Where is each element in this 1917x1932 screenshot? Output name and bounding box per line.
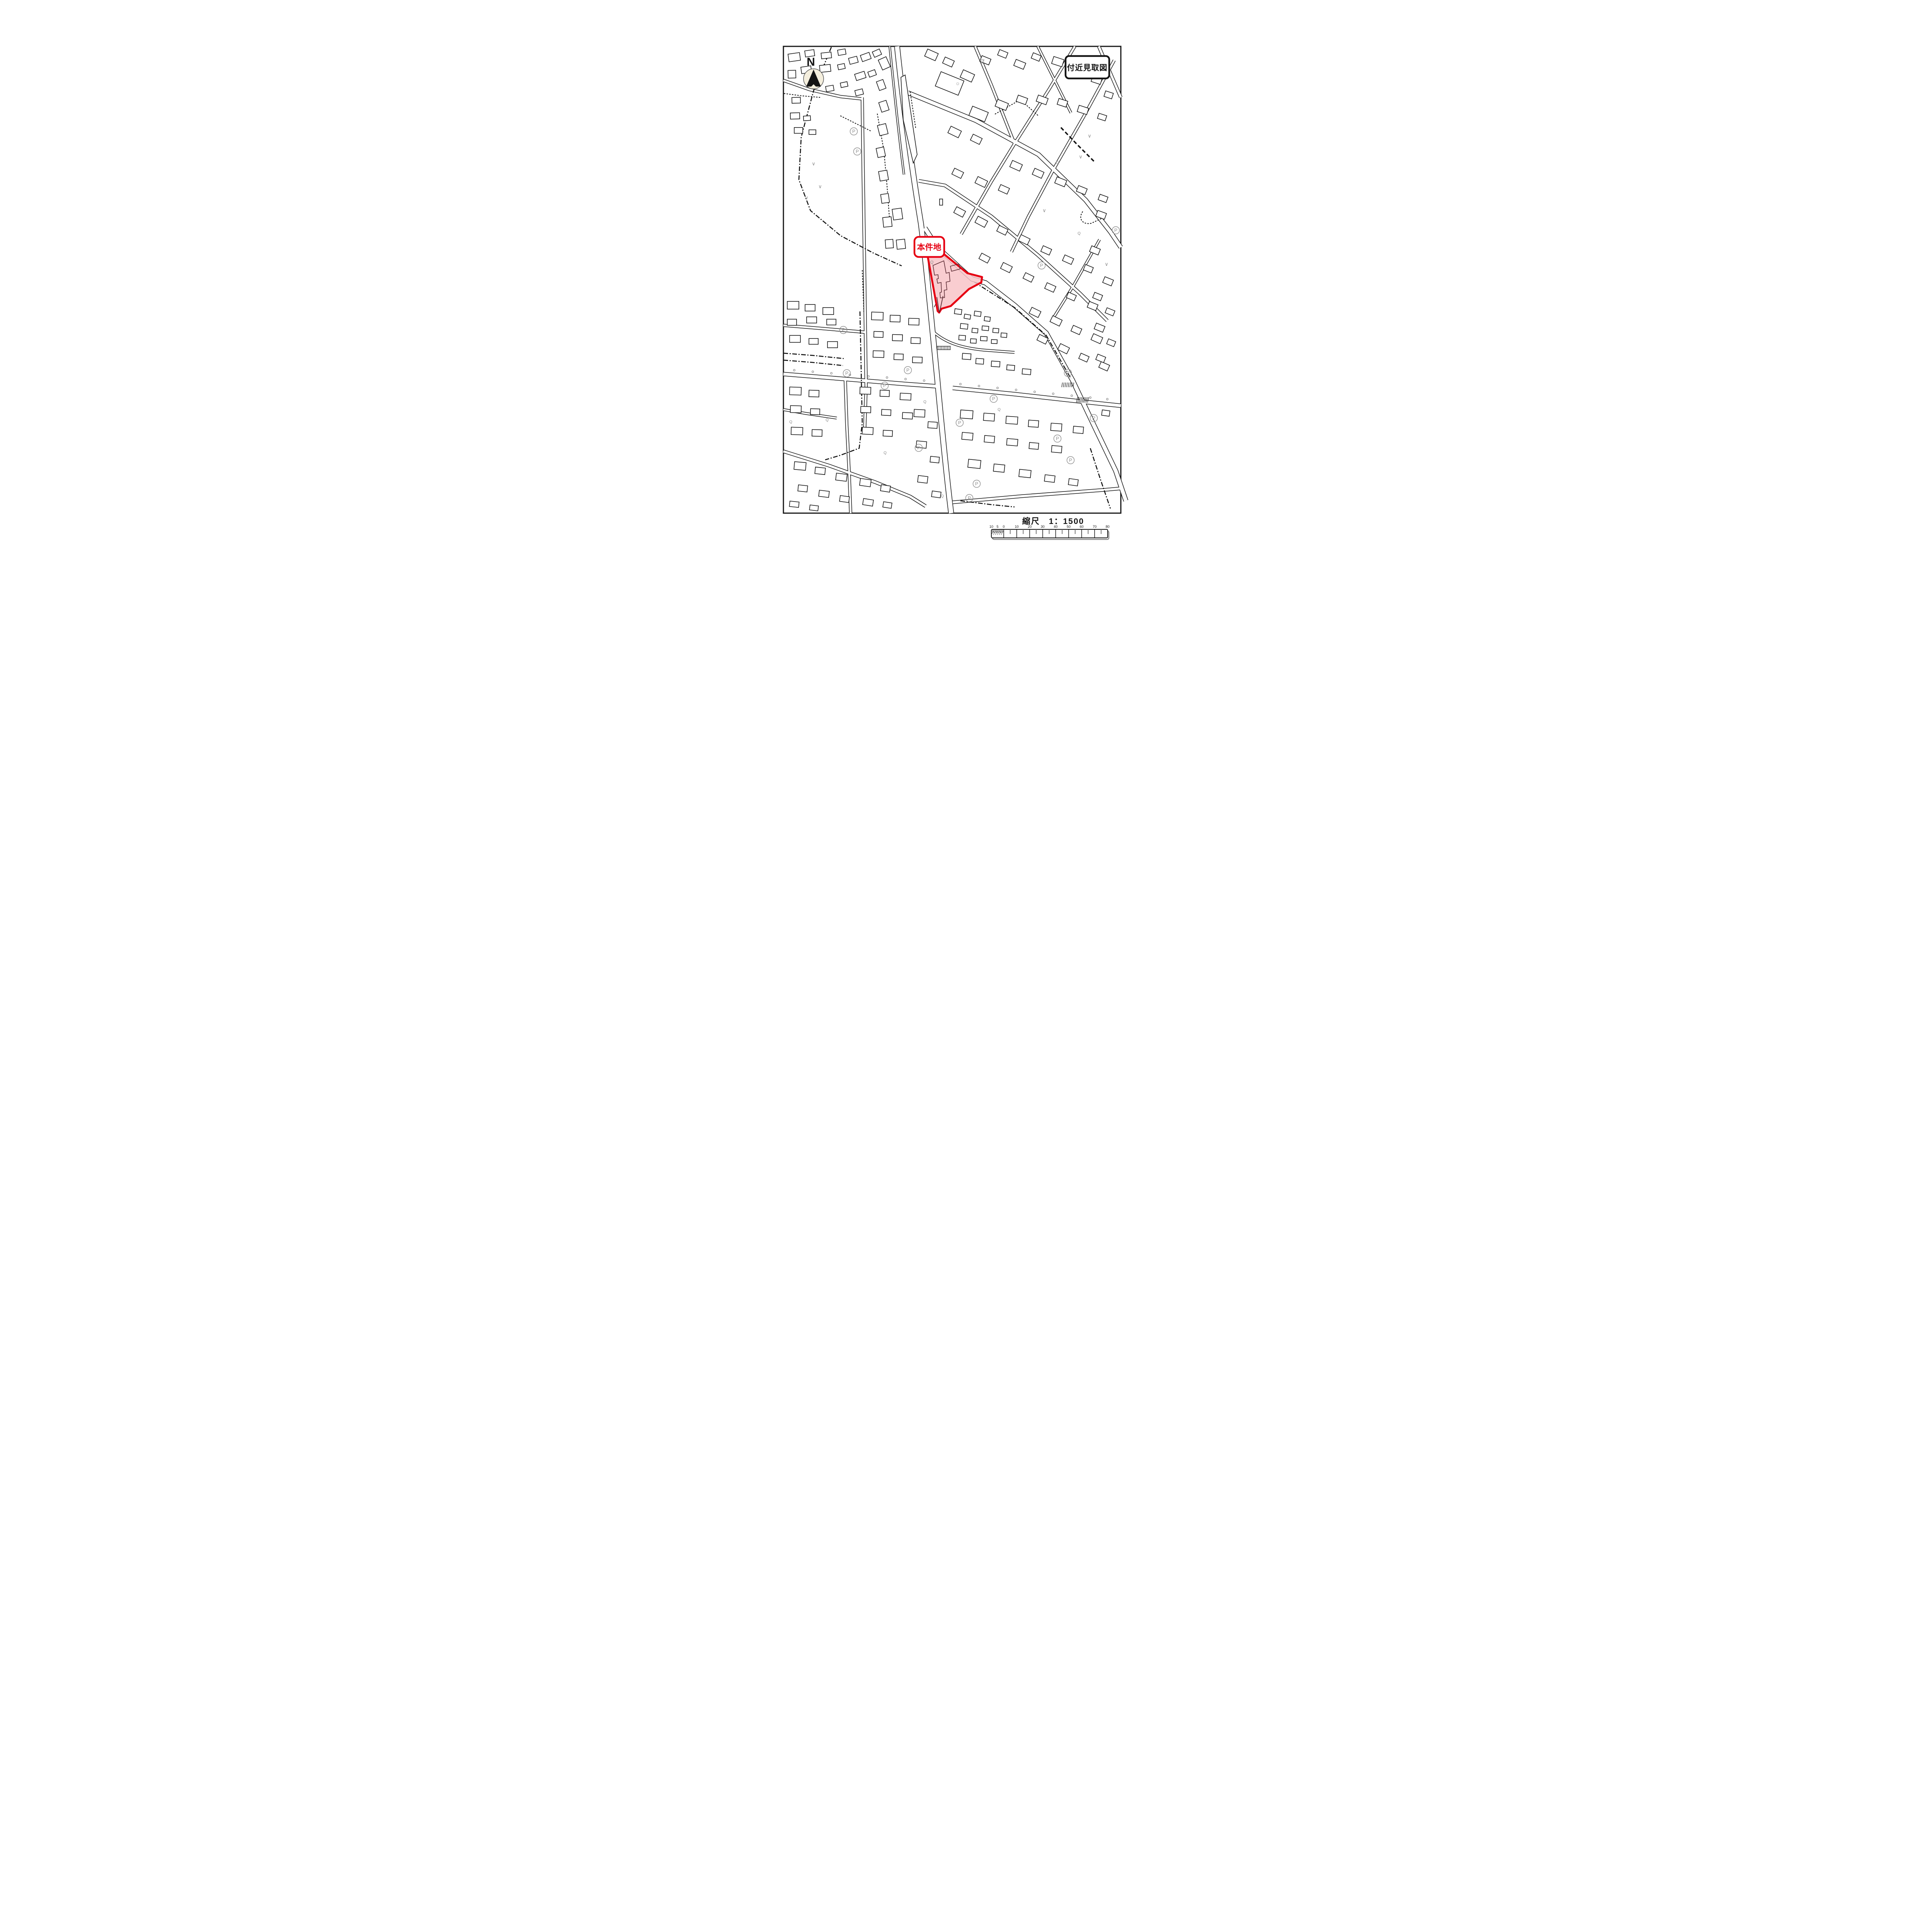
parcel-q-mark: Q [930,260,934,265]
building-outline [863,498,873,506]
building-outline [792,97,801,104]
building-outline [959,335,966,340]
north-label: N [807,56,815,68]
building-outline [991,361,1000,367]
building-outline [991,340,998,344]
svg-text:P: P [1092,415,1095,421]
building-outline [1028,420,1039,427]
building-outline [794,462,806,471]
svg-text:P: P [1069,457,1072,463]
building-outline [804,116,811,121]
building-outline [918,476,928,483]
building-outline [823,308,834,315]
building-outline [809,130,816,134]
building-outline [789,501,799,507]
building-outline [860,387,871,395]
building-outline [812,430,822,437]
building-outline [940,199,943,205]
building-outline [981,337,987,341]
scale-tick-label: 5 [996,525,998,529]
building-outline [880,194,889,204]
svg-text:P: P [1066,370,1069,376]
map-title-box: 付近見取図 [1066,56,1109,78]
svg-text:P: P [975,481,978,486]
building-outline [931,491,941,498]
building-outline [1068,478,1078,486]
building-outline [805,304,815,311]
building-outline [807,317,817,323]
scale-bar: 縮尺 1：1500 10501020304050607080 [989,517,1110,539]
scale-tick-label: 40 [1054,525,1057,529]
building-outline [815,467,826,475]
building-outline [954,309,962,315]
building-outline [983,413,994,421]
map-title: 付近見取図 [1067,63,1108,72]
building-outline [960,323,968,329]
building-outline [838,63,845,70]
svg-text:P: P [845,371,848,376]
scale-tick-label: 30 [1041,525,1045,529]
building-outline [984,435,994,443]
scale-tick-label: 0 [1003,525,1004,529]
building-outline [993,328,999,333]
svg-text:P: P [1040,263,1043,268]
building-outline [791,427,803,435]
building-outline [790,113,800,119]
building-outline [819,490,829,497]
building-outline [913,357,923,363]
building-outline [1051,446,1062,453]
building-outline [1006,365,1015,371]
building-outline [930,456,939,463]
svg-text:P: P [842,327,845,333]
building-outline [838,49,846,55]
building-outline [798,485,808,492]
vegetation-mark: ∨ [1088,133,1091,139]
building-outline [819,65,831,73]
building-outline [827,319,836,325]
svg-text:P: P [1056,436,1059,441]
vegetation-mark: ∨ [812,161,815,167]
building-outline [964,314,971,320]
building-outline [962,432,973,440]
building-outline [1006,439,1018,446]
building-outline [900,393,911,400]
building-outline [810,409,820,415]
building-outline [928,422,937,429]
building-outline [880,390,890,397]
svg-text:P: P [852,129,855,134]
q-mark: Q [789,420,792,424]
q-mark: Q [884,451,887,455]
building-outline [962,353,971,359]
building-outline [790,406,802,413]
building-outline [896,239,906,249]
building-outline [993,464,1005,473]
map-page: Q PPPPPPPPPPPPPPPPP∨∨∨∨∨∨∨QQQQQQQQ☼ N 付近… [744,0,1173,607]
svg-text:P: P [883,383,886,388]
building-outline [885,239,893,248]
building-outline [839,495,850,502]
building-outline [787,319,797,325]
building-outline [1044,474,1055,482]
building-outline [972,328,978,333]
subject-site-label: 本件地 [914,237,944,257]
building-outline [883,502,892,508]
svg-text:P: P [917,445,920,451]
building-outline [790,335,800,342]
q-mark: Q [1078,231,1081,236]
building-outline [883,217,892,227]
vegetation-mark: ∨ [1042,207,1046,213]
building-outline [892,335,903,341]
building-outline [809,338,818,344]
building-outline [984,316,990,321]
vicinity-map: Q PPPPPPPPPPPPPPPPP∨∨∨∨∨∨∨QQQQQQQQ☼ N 付近… [744,0,1173,607]
scale-tick-label: 10 [989,525,993,529]
building-outline [911,338,921,344]
building-outline [1019,469,1031,478]
svg-text:P: P [856,149,859,154]
building-outline [970,338,977,343]
scale-tick-label: 10 [1015,525,1019,529]
building-outline [862,427,873,434]
building-outline [787,301,799,309]
subject-label-text: 本件地 [917,243,941,252]
building-outline [827,342,838,348]
steps-symbol [937,346,950,350]
building-outline [876,147,886,158]
q-mark: Q [1056,161,1059,165]
building-outline [890,315,901,322]
building-outline [790,387,802,395]
building-outline [1102,410,1110,417]
svg-text:P: P [1114,228,1117,233]
building-outline [788,70,796,78]
svg-text:P: P [992,396,995,401]
building-outline [960,410,973,419]
svg-text:P: P [968,495,971,501]
svg-text:P: P [958,420,961,425]
building-outline [1029,442,1039,449]
sun-mark: ☼ [955,80,960,86]
vegetation-mark: ∨ [805,195,809,201]
building-outline [968,459,981,468]
building-outline [902,412,913,419]
building-outline [1006,416,1018,424]
building-outline [880,485,890,492]
building-outline [1001,333,1007,337]
scale-tick-label: 20 [1028,525,1032,529]
vegetation-mark: ∨ [1079,154,1083,160]
vegetation-mark: ∨ [1105,261,1108,267]
building-outline [892,208,903,220]
building-outline [872,312,884,320]
scale-tick-label: 70 [1093,525,1096,529]
building-outline [840,82,848,87]
building-outline [1022,369,1031,375]
scale-tick-label: 80 [1106,525,1110,529]
svg-text:P: P [906,367,909,373]
vegetation-mark: ∨ [818,184,822,189]
building-outline [788,53,800,62]
building-outline [909,318,919,325]
building-outline [974,311,981,316]
q-mark: Q [998,408,1001,412]
building-outline [826,85,834,92]
building-outline [976,358,984,364]
building-outline [873,351,884,358]
q-mark: Q [941,494,944,498]
q-mark: Q [826,418,829,422]
building-outline [861,406,871,413]
building-outline [794,128,803,133]
building-outline [878,170,889,181]
building-outline [821,52,831,59]
q-mark: Q [923,400,926,404]
building-outline [860,478,871,487]
building-outline [836,473,847,481]
building-outline [809,505,818,511]
building-outline [894,354,904,360]
building-outline [874,332,884,338]
building-outline [883,430,893,436]
building-outline [914,409,925,417]
building-outline [882,409,891,415]
building-outline [982,326,989,330]
scale-tick-label: 60 [1080,525,1084,529]
scale-tick-label: 50 [1067,525,1071,529]
building-outline [1073,426,1083,434]
building-outline [809,390,819,397]
building-outline [1050,423,1062,431]
